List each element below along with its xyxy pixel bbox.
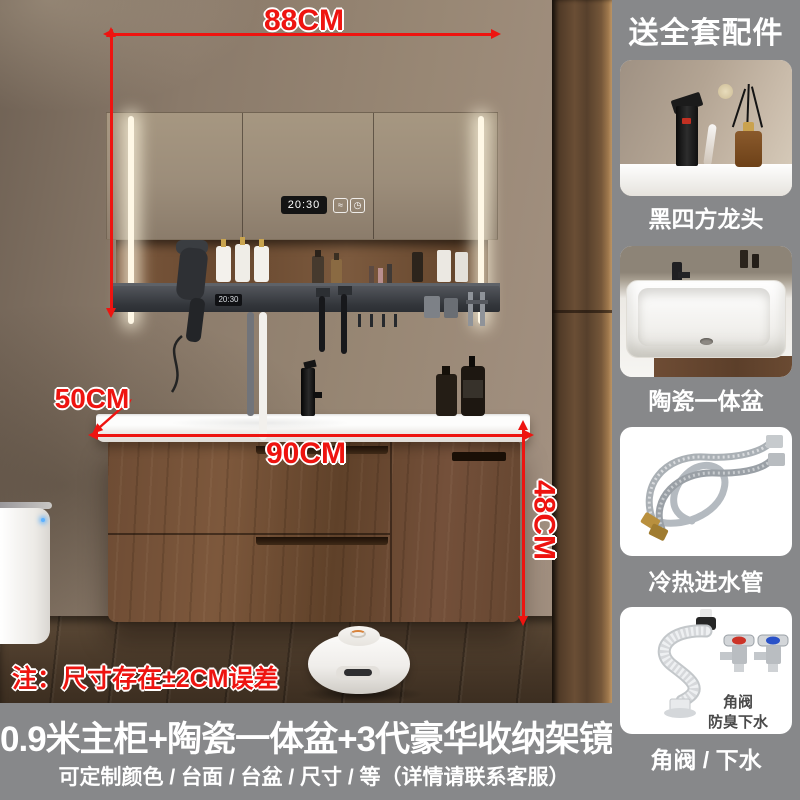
frame-seam (552, 310, 612, 313)
robot-vacuum-window (344, 669, 372, 676)
rack-hook (358, 314, 361, 327)
perfume-cap (334, 253, 339, 260)
basin-faucet-spout (678, 272, 690, 278)
accessory-label-drain: 角阀 / 下水 (612, 741, 800, 775)
door-handle[interactable] (452, 452, 506, 461)
rack-canister (424, 296, 440, 318)
product-subtitle: 可定制颜色 / 台面 / 台盆 / 尺寸 / 等（详情请联系客服） (0, 761, 628, 791)
white-cup (455, 252, 468, 282)
toiletry-bottle (235, 244, 250, 282)
accessory-card-hoses[interactable] (620, 427, 792, 556)
rack-hook (382, 314, 385, 327)
size-tolerance-note: 注：尺寸存在±2CM误差 (12, 666, 279, 692)
defog-icon[interactable]: ≈ (333, 198, 348, 213)
white-cup (437, 250, 451, 282)
basin-photo-bottle (740, 250, 748, 268)
black-faucet-body (676, 106, 698, 166)
soap-bottle-pump (469, 356, 475, 367)
accessory-label-basin: 陶瓷一体盆 (612, 382, 800, 416)
razor-hanging (319, 296, 325, 352)
soap-bottle-cap (442, 366, 450, 375)
wood-door-frame (552, 0, 612, 716)
cosmetic-stick (378, 268, 383, 284)
toiletry-bottle (216, 246, 231, 282)
storage-rack-bar (112, 286, 500, 312)
toothbrush-hanging (247, 312, 254, 416)
dim-line-mirror-height (110, 33, 113, 311)
dark-bottle (412, 252, 423, 282)
faucet-led-readout (682, 118, 691, 124)
arrow-right-icon (491, 29, 501, 39)
bottle-pump (240, 237, 245, 245)
drawer-handle-groove[interactable] (256, 537, 388, 545)
sidebar-title: 送全套配件 (612, 8, 800, 52)
mirror-cabinet (106, 112, 498, 240)
accessory-card-drain[interactable]: 角阀 防臭下水 (620, 607, 792, 734)
cup-holder-plate (468, 292, 473, 326)
hair-dryer-cord (158, 334, 192, 396)
cup-holder-plate (480, 292, 485, 326)
dim-label-cabinet-width: 90CM (246, 438, 366, 470)
faucet-photo-counter (620, 164, 792, 196)
rack-hook (370, 314, 373, 327)
arrow-left-icon (88, 430, 98, 440)
basin-photo-bottle (752, 254, 759, 268)
cosmetic-stick (369, 266, 374, 284)
mirror-door-seam (242, 113, 243, 239)
arrow-down-icon (518, 616, 528, 626)
hair-dryer-body (175, 247, 208, 302)
cabinet-shelf-niche (116, 240, 488, 286)
perfume-cap (315, 250, 321, 257)
diffuser-bloom (718, 84, 733, 99)
product-listing-image: 20:30 ≈ ◷ 20:30 (0, 0, 800, 800)
perfume-bottle (331, 259, 342, 284)
rack-clock-display: 20:30 (215, 294, 242, 306)
perfume-bottle (312, 256, 324, 284)
toothbrush-hanging (259, 312, 267, 440)
product-title: 0.9米主柜+陶瓷一体盆+3代豪华收纳架镜柜 (0, 711, 628, 762)
arrow-up-icon (518, 420, 528, 430)
bottle-pump (221, 239, 226, 247)
toilet-body (0, 508, 50, 644)
accessories-sidebar: 送全套配件 黑四方龙头 陶 (612, 0, 800, 800)
accessory-label-faucet: 黑四方龙头 (612, 200, 800, 234)
diffuser-bottle (735, 131, 762, 167)
mirror-door-seam (373, 113, 374, 239)
cup-holder-bar (466, 300, 488, 304)
dim-label-cabinet-height: 48CM (528, 480, 560, 560)
dim-label-mirror-width: 88CM (252, 5, 356, 37)
bottle-pump (259, 239, 264, 247)
razor-hanging (341, 294, 347, 354)
cosmetic-stick (387, 264, 392, 284)
rack-hook (394, 314, 397, 327)
rack-canister (444, 298, 458, 318)
drain-badge-text: 防臭下水 (692, 711, 784, 732)
faucet-spout (313, 392, 322, 398)
arrow-down-icon (106, 308, 116, 318)
dim-line-cabinet-height (522, 426, 525, 618)
braided-hoses-art (620, 427, 792, 556)
valve-badge-text: 角阀 (700, 691, 776, 712)
timer-icon[interactable]: ◷ (350, 198, 365, 213)
robot-vacuum-ring (350, 630, 366, 638)
toiletry-bottle (254, 246, 269, 282)
accessory-label-hoses: 冷热进水管 (612, 563, 800, 597)
arrow-right-icon (524, 430, 534, 440)
basin-wood-base (654, 356, 792, 377)
basin-drain (700, 338, 713, 345)
arrow-up-icon (106, 27, 116, 37)
mirror-clock-display[interactable]: 20:30 (281, 196, 327, 214)
toilet-indicator-led (41, 518, 45, 522)
accessory-card-basin[interactable] (620, 246, 792, 377)
accessory-card-faucet[interactable] (620, 60, 792, 196)
drawer-divider (108, 533, 390, 535)
dim-label-depth: 50CM (44, 384, 140, 413)
door-divider (390, 442, 392, 622)
soap-bottle-label (463, 380, 483, 398)
soap-bottle (436, 374, 457, 416)
